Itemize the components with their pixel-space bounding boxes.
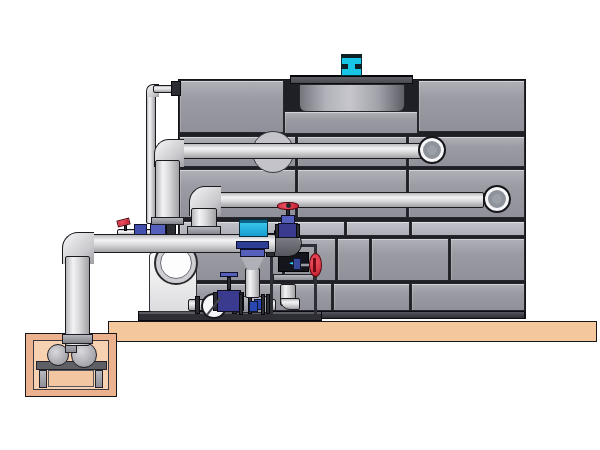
fan-cowl-drum: [299, 84, 405, 112]
upper-pipe-riser: [155, 160, 180, 222]
concrete-slab: [108, 321, 597, 342]
casing-panel: [418, 80, 525, 132]
pit-stand-opening: [48, 370, 94, 387]
casing-panel: [333, 283, 410, 311]
drain-valve-body: [217, 290, 241, 312]
control-valve-flange: [236, 241, 269, 249]
side-valve-hub: [313, 258, 316, 272]
gate-valve-hub: [286, 203, 291, 208]
stand-shelf: [273, 274, 314, 281]
base-flange: [261, 294, 265, 315]
casing-panel: [337, 238, 370, 281]
casing-panel: [450, 238, 525, 281]
base-spacer: [249, 301, 258, 312]
fan-motor-cap: [341, 54, 362, 58]
gate-valve-flange: [296, 224, 300, 238]
controller-box: [239, 219, 268, 237]
casing-panel: [179, 80, 284, 133]
control-valve-yoke: [240, 249, 265, 257]
gate-valve-bonnet: [281, 215, 295, 224]
casing-panel: [371, 238, 449, 281]
pit-drop-pipe: [65, 256, 90, 346]
casing-panel: [411, 283, 525, 311]
pit-stand-leg: [39, 370, 47, 388]
drop-pipe-coupling: [62, 334, 93, 344]
lever-valve-stem: [124, 225, 127, 231]
pipe-flange: [195, 296, 200, 314]
gate-valve-flange: [275, 224, 279, 238]
upper-riser-flange: [151, 217, 184, 225]
upper-pipe-wall-elbow: [418, 136, 446, 164]
casing-sill-band: [411, 221, 525, 236]
casing-sill-band: [346, 221, 410, 236]
pit-stand-leg: [95, 370, 103, 388]
illustration-canvas: ◄: [0, 0, 600, 450]
fan-cowl-flange: [290, 75, 413, 84]
base-flange: [239, 294, 243, 315]
drain-valve-stem: [227, 277, 231, 290]
middle-pipe: [214, 192, 484, 208]
fan-motor-window: [348, 64, 355, 69]
gate-valve-stem: [286, 209, 290, 216]
casing-panel: [284, 111, 418, 134]
makeup-wall-fitting: [171, 81, 181, 96]
gate-valve-body: [278, 223, 298, 238]
side-valve-bonnet: [293, 258, 301, 270]
lever-valve-handle: [116, 218, 130, 228]
upper-pipe: [166, 143, 434, 159]
coupling-flange: [266, 294, 270, 314]
pit-pump-stand: [36, 361, 107, 370]
middle-pipe-wall-elbow: [483, 185, 511, 213]
control-valve-drop-pipe: [245, 268, 260, 298]
